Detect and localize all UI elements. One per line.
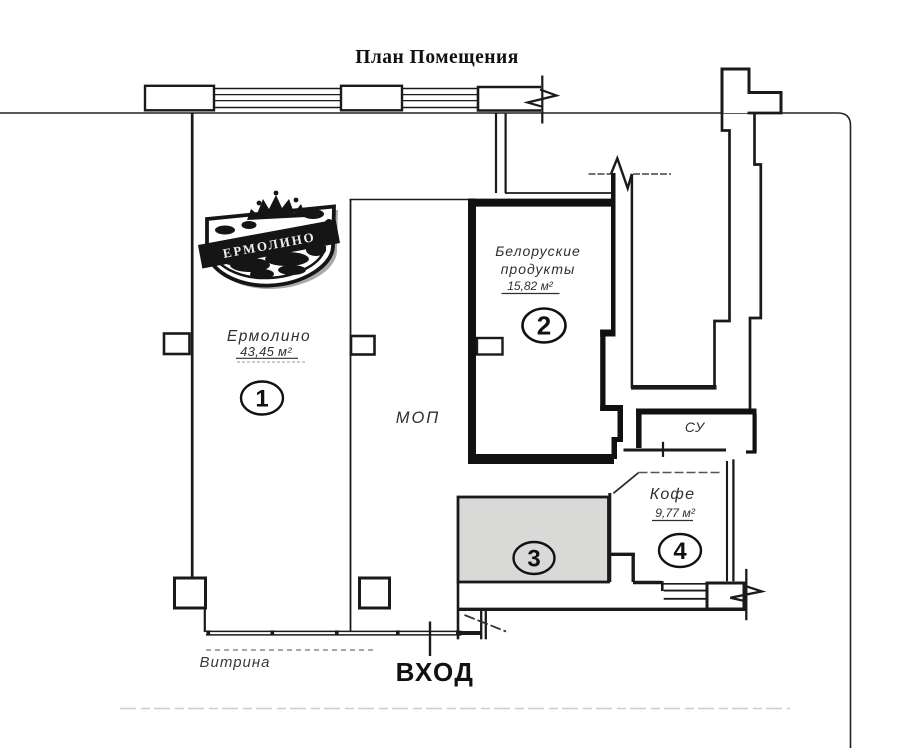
svg-text:Белоруские: Белоруские: [495, 243, 581, 259]
svg-text:Ермолино: Ермолино: [227, 328, 311, 345]
svg-text:СУ: СУ: [685, 419, 706, 435]
svg-text:МОП: МОП: [396, 409, 441, 427]
svg-text:4: 4: [673, 538, 687, 565]
svg-text:9,77 м²: 9,77 м²: [655, 506, 696, 520]
svg-text:2: 2: [537, 311, 551, 341]
svg-text:продукты: продукты: [501, 261, 576, 277]
svg-text:ВХОД: ВХОД: [396, 657, 475, 687]
svg-text:3: 3: [527, 546, 540, 573]
svg-text:15,82 м²: 15,82 м²: [507, 279, 554, 293]
svg-text:План Помещения: План Помещения: [355, 47, 519, 68]
svg-text:43,45 м²: 43,45 м²: [240, 344, 292, 359]
svg-text:Кофе: Кофе: [650, 486, 696, 503]
svg-text:Витрина: Витрина: [200, 654, 271, 671]
svg-text:1: 1: [255, 386, 268, 413]
